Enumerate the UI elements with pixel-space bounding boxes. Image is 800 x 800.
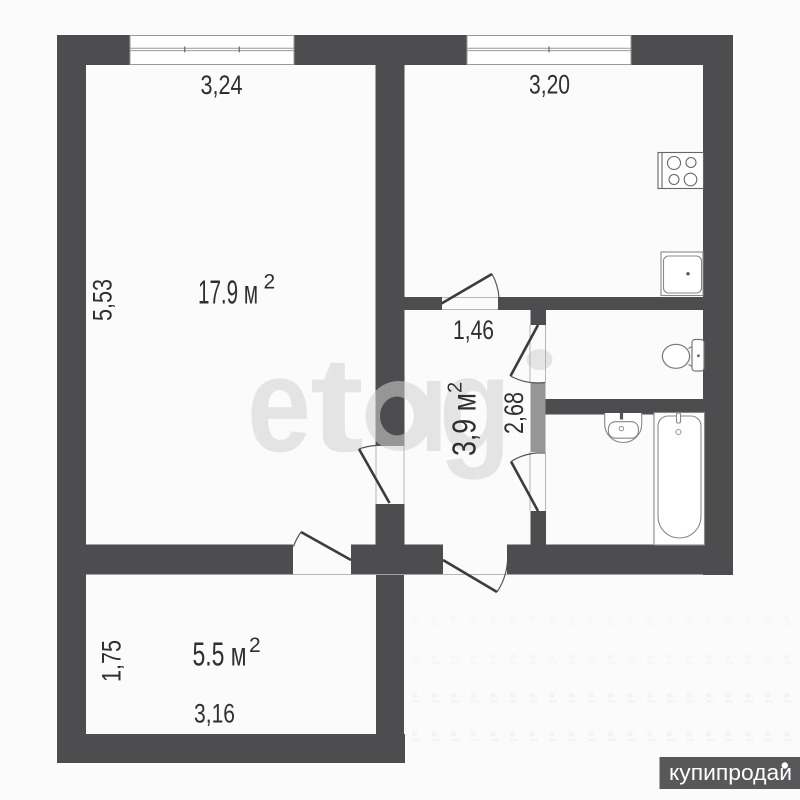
svg-text:3,24: 3,24: [201, 70, 243, 100]
svg-text:1,75: 1,75: [97, 640, 127, 682]
svg-text:e: e: [247, 329, 311, 480]
svg-text:2,68: 2,68: [499, 392, 529, 434]
svg-text:2: 2: [264, 271, 276, 294]
svg-text:t: t: [310, 329, 364, 480]
svg-text:2: 2: [249, 634, 261, 657]
svg-text:купипродаи: купипродаи: [669, 760, 792, 785]
svg-text:3,16: 3,16: [194, 699, 235, 729]
svg-text:5,53: 5,53: [88, 279, 118, 321]
svg-text:17.9 м: 17.9 м: [198, 274, 258, 311]
svg-text:5.5 м: 5.5 м: [193, 636, 247, 673]
svg-text:3,20: 3,20: [529, 70, 570, 100]
svg-text:1,46: 1,46: [453, 315, 494, 345]
